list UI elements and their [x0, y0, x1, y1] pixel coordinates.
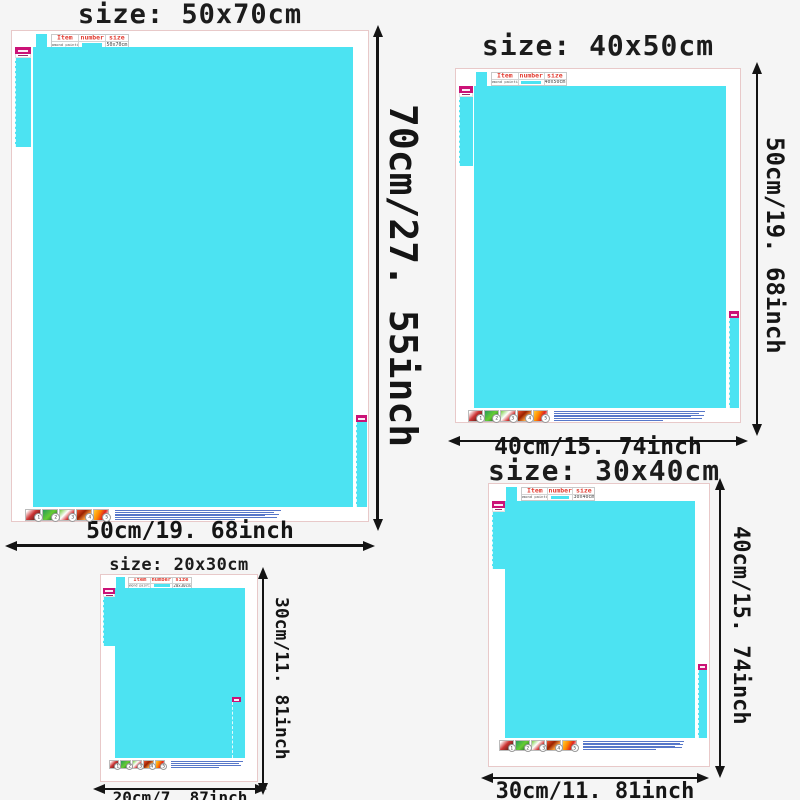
table-value-row: Diamond painting 40x50cm — [492, 80, 566, 86]
vertical-dimension-arrow — [262, 578, 264, 784]
item-number-size-table: Item number size Diamond painting 40x50c… — [491, 72, 567, 86]
canvas-frame: Item number size Diamond painting 30x40c… — [488, 483, 710, 767]
instruction-strip: 1 2 3 4 5 — [468, 410, 730, 422]
step-number-badge: 2 — [524, 744, 532, 752]
instruction-text-lines — [581, 740, 689, 751]
table-header-number: number — [519, 73, 542, 79]
color-swatch — [476, 72, 487, 86]
table-header-size: size — [175, 578, 188, 583]
left-color-legend-tag — [15, 47, 31, 147]
instruction-text-lines — [552, 410, 712, 422]
table-header-number: number — [548, 488, 571, 494]
step-number-badge: 3 — [509, 414, 518, 423]
table-number-swatch — [521, 81, 540, 84]
canvas-frame: Item number size Diamond painting 40x50c… — [455, 68, 741, 423]
tag-header — [356, 415, 367, 422]
table-item-value: Diamond painting — [492, 80, 519, 84]
vertical-dimension-arrow — [756, 73, 758, 425]
step-image: 1 — [109, 760, 119, 769]
table-item-value: Diamond painting — [129, 584, 151, 588]
step-image: 3 — [531, 740, 546, 751]
table-item-value: Diamond painting — [522, 495, 548, 499]
canvas-print-area — [115, 588, 245, 758]
vertical-dimension-label: 40cm/15. 74inch — [729, 483, 751, 767]
tag-header — [459, 86, 473, 93]
vertical-dimension-arrow — [376, 36, 379, 520]
step-image: 2 — [120, 760, 130, 769]
step-number-badge: 4 — [149, 763, 156, 770]
step-image: 2 — [515, 740, 530, 751]
instruction-step-images: 1 2 3 4 5 — [499, 740, 577, 751]
right-color-legend-tag — [232, 697, 241, 758]
step-image: 4 — [517, 410, 532, 422]
step-number-badge: 4 — [85, 513, 94, 522]
table-number-swatch — [154, 584, 170, 587]
panel-title: size: 30x40cm — [488, 456, 710, 485]
tag-header — [15, 47, 31, 54]
left-color-legend-tag — [492, 501, 505, 569]
table-header-size: size — [109, 35, 125, 41]
instruction-strip: 1 2 3 4 5 — [499, 740, 699, 751]
step-number-badge: 1 — [34, 513, 43, 522]
panel-title: size: 40x50cm — [455, 31, 741, 60]
tag-header — [492, 501, 505, 508]
table-header-item: Item — [497, 73, 513, 79]
instruction-strip: 1 2 3 4 5 — [109, 760, 251, 769]
right-color-legend-tag — [729, 311, 739, 408]
canvas-print-area — [33, 47, 353, 507]
table-value-row: Diamond painting 30x40cm — [522, 495, 594, 501]
table-header-number: number — [152, 578, 172, 583]
panel-title: size: 50x70cm — [11, 1, 369, 29]
vertical-dimension-label: 30cm/11. 81inch — [272, 574, 290, 782]
size-chart-infographic: size: 50x70cm Item number size Diamond p… — [0, 0, 800, 800]
table-header-item: Item — [133, 578, 146, 583]
step-image: 5 — [562, 740, 577, 751]
step-image: 3 — [500, 410, 515, 422]
left-color-legend-tag — [459, 86, 473, 166]
step-number-badge: 2 — [51, 513, 60, 522]
table-header-number: number — [80, 35, 103, 41]
table-header-item: Item — [57, 35, 73, 41]
step-image: 5 — [533, 410, 548, 422]
canvas-frame: Item number size Diamond painting 50x70c… — [11, 30, 369, 522]
step-number-badge: 5 — [160, 763, 167, 770]
step-number-badge: 3 — [68, 513, 77, 522]
vertical-dimension-label: 50cm/19. 68inch — [763, 68, 787, 423]
step-number-badge: 4 — [525, 414, 534, 423]
step-number-badge: 1 — [508, 744, 516, 752]
table-number-swatch — [551, 496, 570, 499]
table-size-value: 40x50cm — [545, 80, 566, 86]
left-color-legend-tag — [103, 588, 115, 646]
right-color-legend-tag — [698, 664, 707, 738]
step-image: 5 — [155, 760, 165, 769]
step-number-badge: 2 — [126, 763, 133, 770]
panel-title: size: 20x30cm — [100, 557, 258, 575]
step-image: 3 — [132, 760, 142, 769]
color-swatch — [506, 487, 517, 501]
step-image: 1 — [468, 410, 483, 422]
canvas-frame: Item number size Diamond painting 20x30c… — [100, 574, 258, 782]
step-image: 2 — [484, 410, 499, 422]
right-color-legend-tag — [356, 415, 367, 507]
item-number-size-table: Item number size Diamond painting 30x40c… — [521, 487, 595, 501]
horizontal-dimension-label: 20cm/7. 87inch — [85, 790, 275, 800]
canvas-print-area — [474, 86, 726, 408]
step-image: 4 — [143, 760, 153, 769]
horizontal-dimension-label: 30cm/11. 81inch — [480, 781, 710, 800]
instruction-step-images: 1 2 3 4 5 — [109, 760, 165, 769]
table-size-value: 30x40cm — [573, 495, 594, 501]
table-header-row: Item number size — [52, 35, 128, 42]
step-number-badge: 5 — [102, 513, 111, 522]
step-image: 1 — [499, 740, 514, 751]
instruction-text-lines — [169, 760, 247, 769]
horizontal-dimension-arrow — [16, 544, 364, 547]
step-number-badge: 5 — [571, 744, 579, 752]
horizontal-dimension-label: 50cm/19. 68inch — [11, 520, 369, 543]
step-image: 4 — [546, 740, 561, 751]
instruction-step-images: 1 2 3 4 5 — [468, 410, 548, 422]
step-number-badge: 5 — [541, 414, 550, 423]
vertical-dimension-label: 70cm/27. 55inch — [384, 30, 422, 522]
tag-header — [729, 311, 739, 318]
canvas-print-area — [505, 501, 695, 738]
table-header-size: size — [547, 73, 563, 79]
table-header-item: Item — [527, 488, 543, 494]
table-header-size: size — [576, 488, 592, 494]
vertical-dimension-arrow — [719, 489, 721, 767]
